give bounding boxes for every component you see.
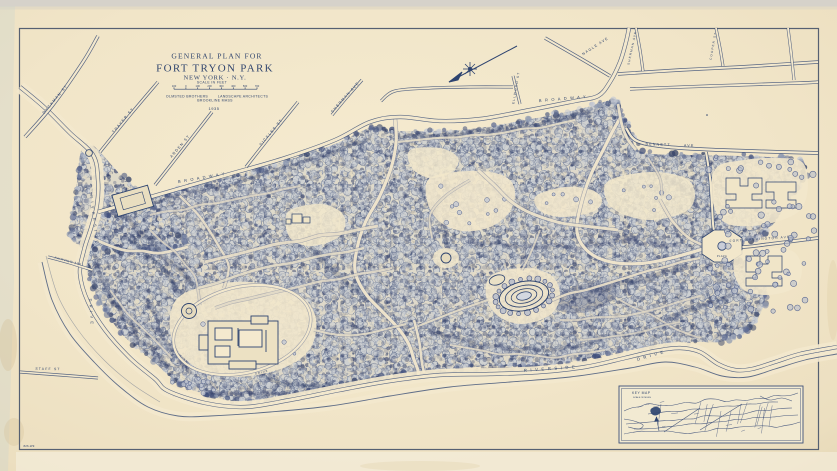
svg-text:300: 300	[219, 84, 224, 88]
svg-text:1935: 1935	[209, 106, 220, 111]
svg-text:200: 200	[207, 84, 212, 88]
svg-text:SCALE OF MILES: SCALE OF MILES	[633, 396, 652, 399]
svg-text:100: 100	[196, 84, 201, 88]
svg-text:FORT TRYON PARK: FORT TRYON PARK	[156, 63, 274, 75]
svg-text:KEY MAP: KEY MAP	[632, 391, 651, 395]
svg-text:STAFF ST: STAFF ST	[35, 367, 60, 371]
svg-text:BROOKLINE MASS: BROOKLINE MASS	[197, 99, 233, 103]
svg-text:100: 100	[172, 84, 177, 88]
svg-text:GENERAL PLAN FOR: GENERAL PLAN FOR	[171, 52, 262, 61]
svg-text:400: 400	[231, 84, 236, 88]
svg-text:500: 500	[243, 84, 248, 88]
svg-text:700: 700	[255, 84, 260, 88]
svg-text:PLAZA: PLAZA	[717, 254, 727, 258]
svg-text:826-W9: 826-W9	[24, 444, 35, 448]
